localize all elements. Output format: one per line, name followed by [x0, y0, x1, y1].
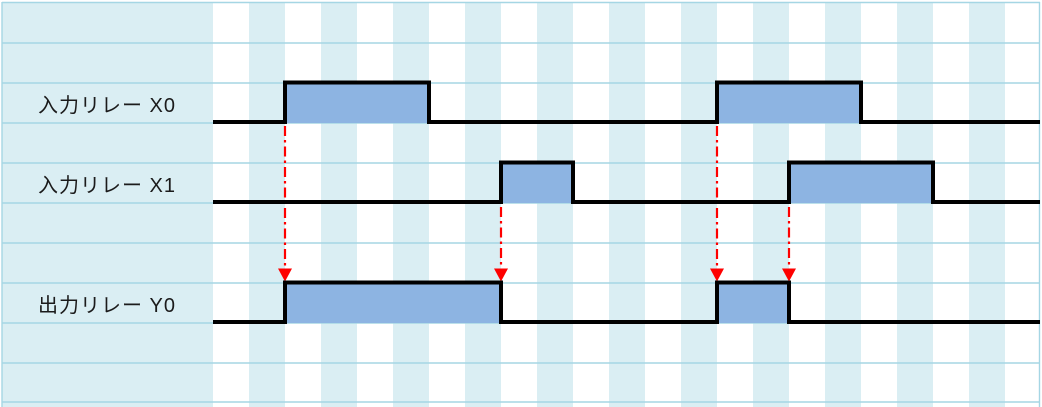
column-stripe-white — [645, 3, 681, 407]
signal-label-output-relay-y0: 出力リレー Y0 — [38, 294, 176, 318]
column-stripe-white — [501, 3, 537, 407]
signal-x0-pulse-fill — [285, 83, 429, 124]
signal-label-input-relay-x0: 入力リレー X0 — [38, 94, 176, 118]
column-stripe-white — [285, 3, 321, 407]
column-stripe-white — [861, 3, 897, 407]
column-stripe-white — [573, 3, 609, 407]
plc-timing-diagram: 入力リレー X0 入力リレー X1 出力リレー Y0 — [0, 0, 1042, 407]
timing-diagram-canvas — [0, 0, 1042, 407]
signal-label-input-relay-x1: 入力リレー X1 — [38, 174, 176, 198]
signal-x0-pulse-fill — [717, 83, 861, 124]
column-stripe-white — [933, 3, 969, 407]
column-stripe-white — [213, 3, 249, 407]
column-stripe-white — [429, 3, 465, 407]
signal-y0-pulse-fill — [717, 283, 789, 324]
column-stripe-white — [1005, 3, 1039, 407]
signal-x1-pulse-fill — [789, 163, 933, 204]
column-stripe-white — [357, 3, 393, 407]
column-stripe-white — [789, 3, 825, 407]
column-stripe-white — [717, 3, 753, 407]
signal-y0-pulse-fill — [285, 283, 501, 324]
signal-x1-pulse-fill — [501, 163, 573, 204]
